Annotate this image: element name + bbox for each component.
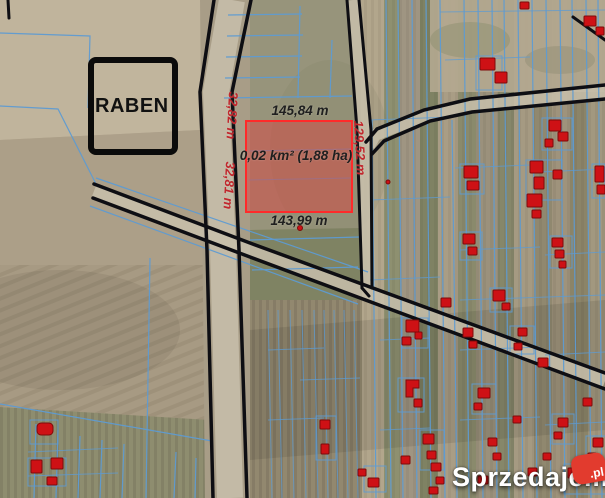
highlighted-parcel: [246, 121, 352, 212]
map-image: 145,84 m 0,02 km² (1,88 ha) 143,99 m 32,…: [0, 0, 605, 498]
watermark-logo-tld: .pl: [589, 465, 605, 481]
parcel-left-lower-length-label: 32,81 m: [221, 161, 238, 209]
parcel-top-length-label: 145,84 m: [240, 103, 360, 118]
raben-label: RABEN: [95, 95, 169, 118]
parcel-bottom-length-label: 143,99 m: [239, 213, 359, 228]
raben-box: RABEN: [88, 57, 178, 155]
watermark-logo-icon: .pl: [570, 451, 605, 485]
parcel-left-upper-length-label: 32,82 m: [224, 91, 241, 139]
watermark: Sprzedajemy .pl: [452, 462, 605, 493]
parcel-right-length-label: 129,52 m: [351, 120, 369, 176]
